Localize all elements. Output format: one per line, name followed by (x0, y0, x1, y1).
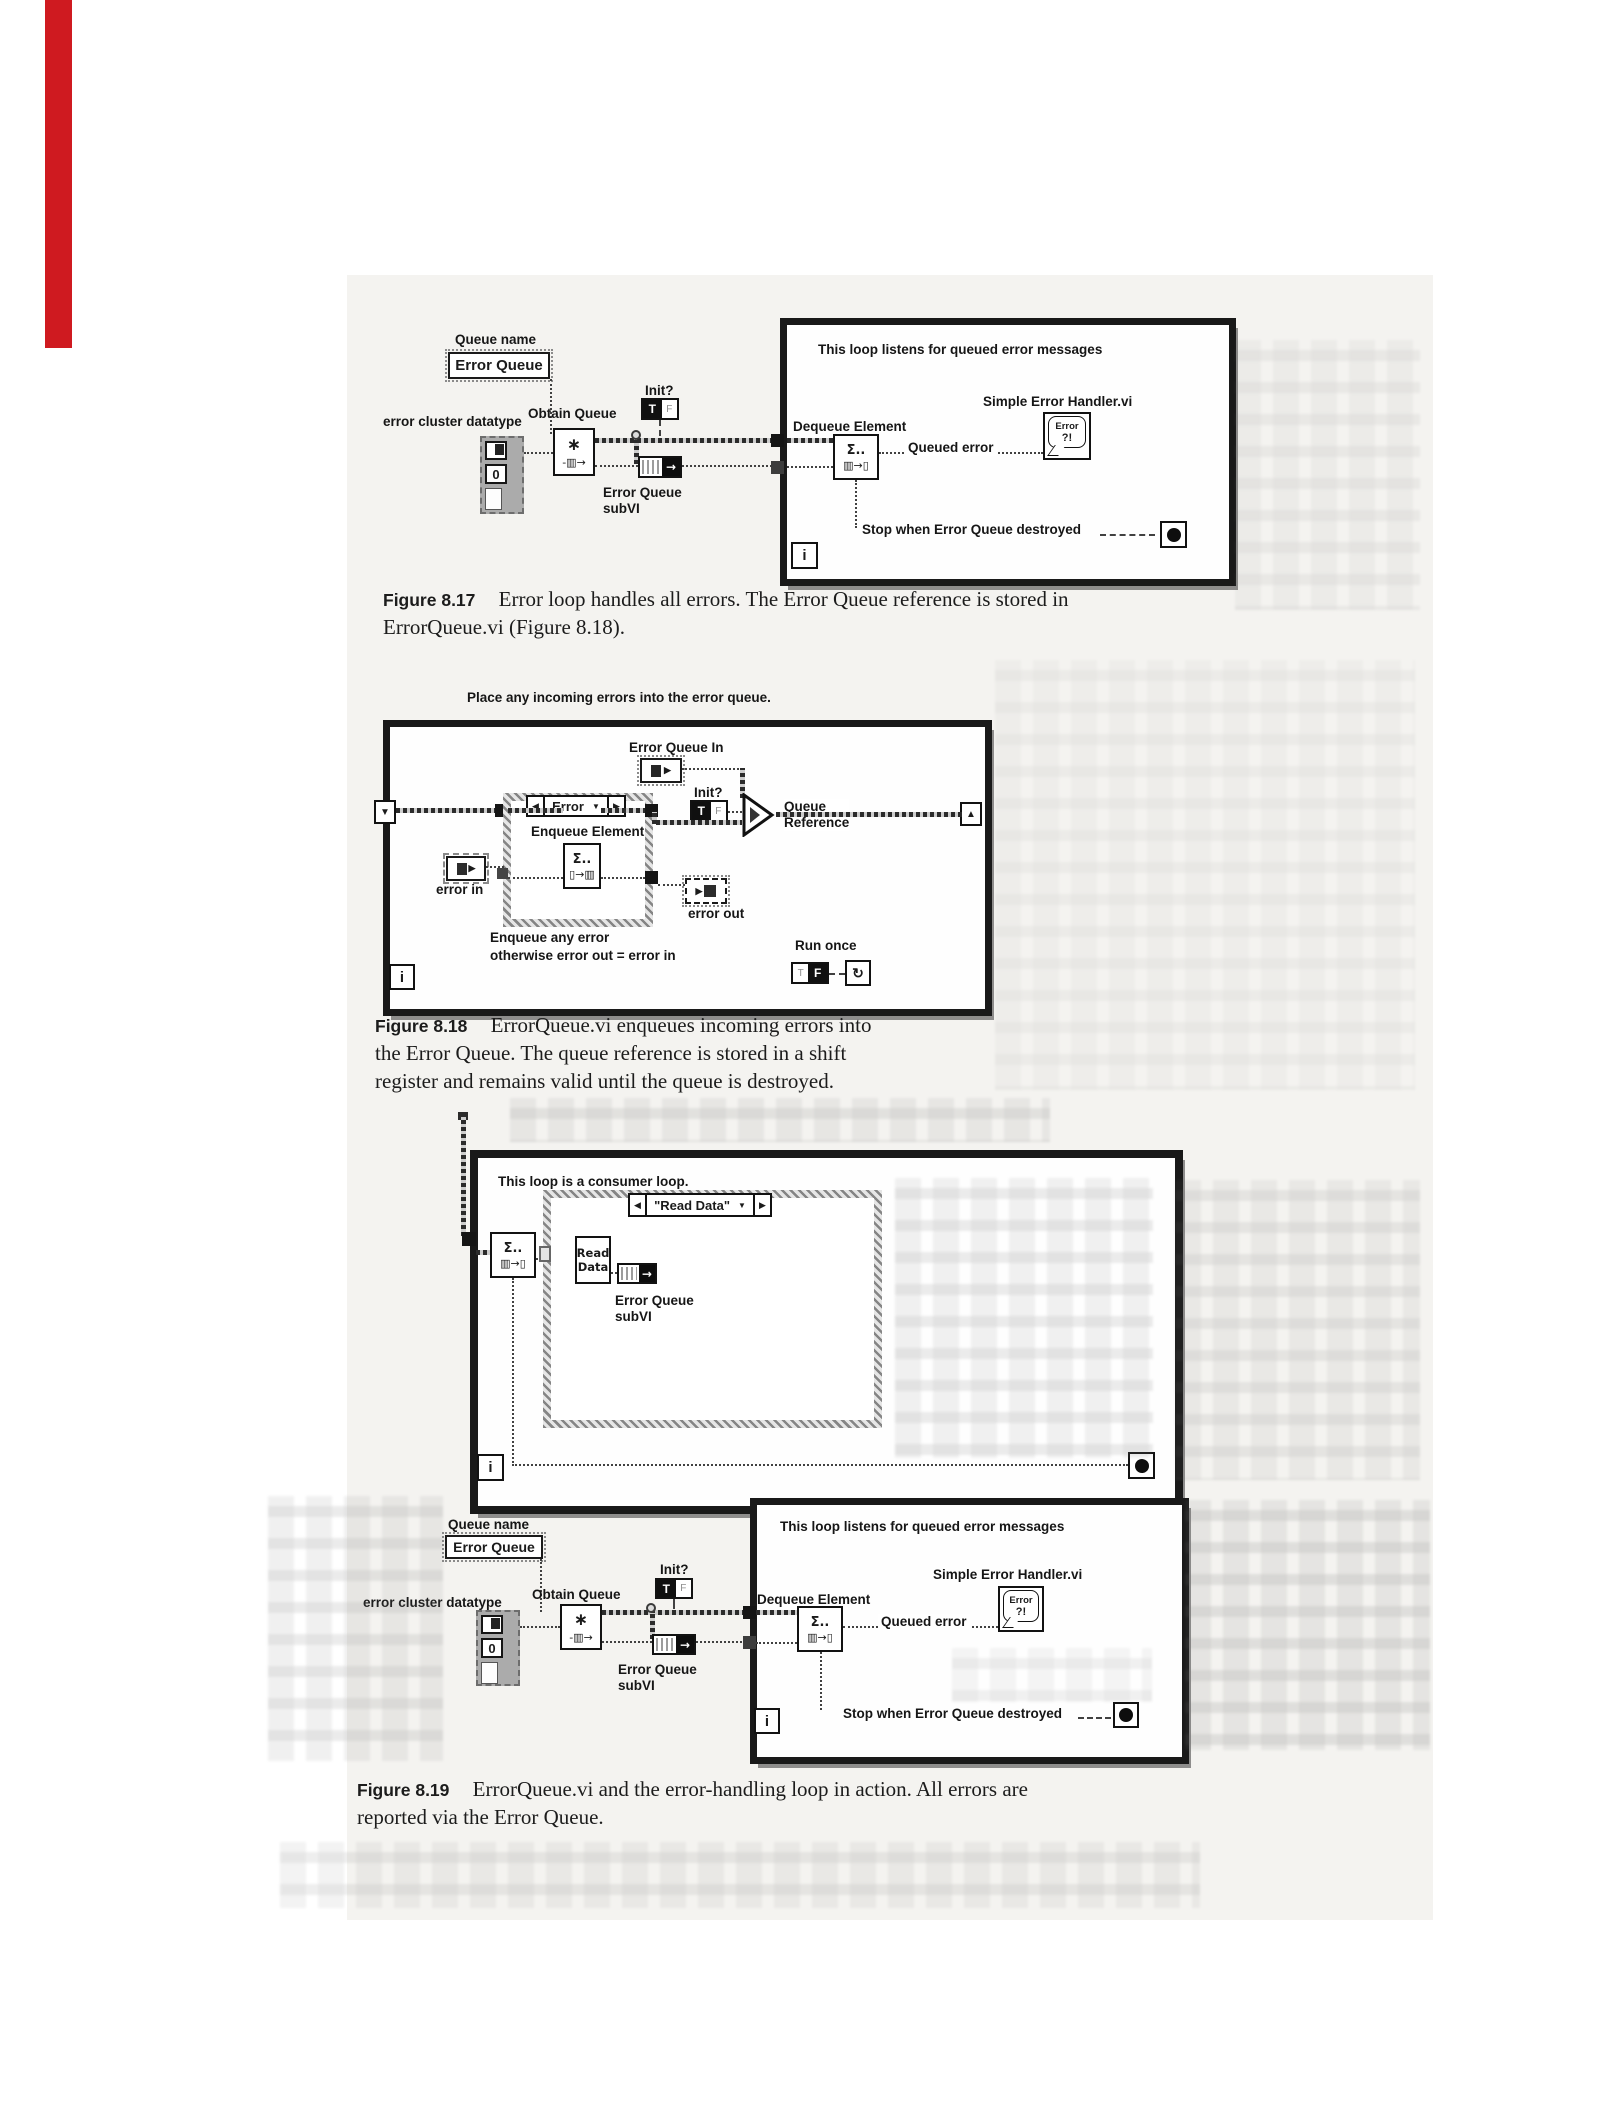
stop-dot-icon (1167, 528, 1181, 542)
stop-terminal (1113, 1702, 1139, 1728)
dropdown-icon: ▼ (738, 1201, 746, 1210)
false-value: F (662, 400, 677, 418)
bleed-through-text (895, 1178, 1153, 1458)
figure-caption: Figure 8.19 ErrorQueue.vi and the error-… (357, 1776, 1028, 1803)
wire (756, 1642, 797, 1644)
cluster-source-field (485, 488, 502, 510)
wire (1100, 534, 1155, 536)
arrow-icon: → (662, 458, 680, 476)
note-line1: Enqueue any error (490, 930, 609, 946)
error-in-control: ▶ (446, 856, 486, 881)
hourglass-icon: Σ.. (573, 852, 592, 867)
bubble-tail (1047, 445, 1066, 456)
select-node (742, 793, 776, 837)
tunnel (743, 1636, 756, 1649)
handler-label: Simple Error Handler.vi (983, 394, 1132, 410)
queue-name-string-control: Error Queue (445, 1535, 543, 1559)
simple-error-handler-icon: Error ?! (1043, 412, 1091, 460)
figure-caption-line2: reported via the Error Queue. (357, 1804, 604, 1831)
note-line2: otherwise error out = error in (490, 948, 676, 964)
iteration-terminal: i (389, 964, 415, 990)
error-out-label: error out (688, 906, 744, 922)
wire (602, 1641, 652, 1643)
enqueue-label: Enqueue Element (531, 824, 644, 840)
queue-name-value: Error Queue (453, 1539, 535, 1555)
error-queue-in-control: ▶ (640, 758, 682, 783)
bleed-through-text (1235, 340, 1420, 610)
dequeue-element-node: Σ.. ▥→▯ (833, 434, 879, 480)
wire (658, 884, 685, 886)
tunnel (743, 1606, 756, 1619)
queue-name-value: Error Queue (455, 357, 543, 374)
case-selector: ◀ "Read Data"▼ ▶ (628, 1193, 772, 1217)
wire (512, 1464, 1128, 1466)
wire (855, 480, 857, 528)
dequeue-element-node: Σ.. ▥→▯ (490, 1232, 536, 1278)
obtain-queue-node: ∗ -▥→ (553, 428, 595, 476)
tunnel (497, 868, 508, 879)
figure-caption-line2: the Error Queue. The queue reference is … (375, 1040, 846, 1067)
subvi-label: Error Queue subVI (615, 1293, 694, 1325)
arrow-icon: ▶ (696, 886, 703, 897)
wire (756, 1610, 797, 1615)
wire (508, 877, 563, 879)
wire (508, 808, 563, 813)
error-out-indicator: ▶ (685, 878, 727, 904)
case-selector: ◀ Error▼ ▶ (526, 795, 626, 817)
shift-register-right: ▲ (960, 802, 982, 826)
cluster-status-icon (485, 441, 507, 460)
queue-pattern-icon (656, 1638, 674, 1651)
init-label: Init? (694, 785, 723, 801)
figure-caption-line3: register and remains valid until the que… (375, 1068, 834, 1095)
arrow-icon: → (676, 1636, 694, 1653)
tunnel (771, 461, 784, 474)
enqueue-icon: ▯→▥ (569, 868, 595, 881)
queue-name-string-control: Error Queue (448, 352, 550, 379)
cluster-source-field (481, 1662, 498, 1684)
init-label: Init? (645, 383, 674, 399)
wire (656, 820, 742, 825)
init-boolean-constant: T F (690, 800, 728, 822)
bleed-through-text (268, 1496, 443, 1761)
speech-bubble-icon: Error ?! (1048, 416, 1086, 448)
error-queue-subvi-node: → (617, 1263, 657, 1284)
wire (787, 438, 833, 443)
handler-label: Simple Error Handler.vi (933, 1567, 1082, 1583)
wire (787, 466, 833, 468)
dequeue-element-node: Σ.. ▥→▯ (797, 1606, 843, 1652)
wire (540, 1559, 542, 1612)
figure-caption: Figure 8.17 Error loop handles all error… (383, 586, 1069, 613)
hourglass-icon: Σ.. (847, 443, 866, 458)
wire (659, 420, 661, 436)
arrow-icon: ▶ (469, 863, 476, 874)
wire (524, 452, 553, 454)
wire (461, 1116, 466, 1236)
loop-condition-terminal: ↻ (845, 960, 871, 986)
wire (673, 1599, 675, 1609)
burst-icon: ∗ (574, 1610, 588, 1630)
case-structure (543, 1190, 882, 1428)
wire (396, 808, 497, 813)
bleed-through-text (995, 660, 1415, 1090)
error-in-label: error in (436, 882, 483, 898)
dequeue-label: Dequeue Element (793, 419, 906, 435)
cluster-glyph (704, 885, 716, 897)
cluster-code-value: 0 (481, 1638, 503, 1658)
error-cluster-label: error cluster datatype (383, 414, 522, 430)
bleed-through-text (952, 1648, 1152, 1702)
wire (602, 1610, 750, 1615)
bleed-through-text (1185, 1500, 1430, 1750)
obtain-queue-node: ∗ -▥→ (560, 1604, 602, 1650)
error-queue-subvi-node: → (638, 456, 682, 478)
burst-icon: ∗ (567, 435, 581, 455)
wire (601, 877, 645, 879)
figure-caption: Figure 8.18 ErrorQueue.vi enqueues incom… (375, 1012, 871, 1039)
cluster-status-icon (481, 1615, 503, 1634)
queue-name-label: Queue name (448, 1517, 529, 1533)
refnum-glyph (651, 765, 661, 777)
subvi-label: Error Queue subVI (618, 1662, 697, 1694)
queue-pattern-icon (642, 460, 660, 474)
tunnel (771, 434, 784, 447)
red-bookmark-strip (45, 0, 72, 348)
init-label: Init? (660, 1562, 689, 1578)
wire (682, 768, 742, 770)
wire (595, 465, 638, 467)
error-cluster-constant: 0 (476, 1610, 520, 1686)
enqueue-element-node: Σ.. ▯→▥ (563, 843, 601, 889)
wire (512, 1278, 514, 1466)
dropdown-icon: ▼ (592, 802, 600, 811)
loop-comment: This loop listens for queued error messa… (780, 1519, 1064, 1535)
iteration-terminal: i (754, 1708, 780, 1734)
bleed-through-text (1175, 1180, 1420, 1480)
wire (520, 1626, 560, 1628)
wire (776, 812, 962, 817)
error-queue-in-label: Error Queue In (629, 740, 724, 756)
wire (728, 811, 742, 813)
true-value: T (643, 400, 662, 418)
queued-error-label: Queued error (878, 1614, 970, 1630)
wire-junction (631, 430, 641, 440)
loop-comment: This loop is a consumer loop. (498, 1174, 689, 1190)
wire (595, 438, 780, 443)
dequeue-icon: ▥→▯ (843, 459, 869, 472)
shift-register-left: ▼ (374, 800, 396, 824)
diagram-comment: Place any incoming errors into the error… (467, 690, 771, 706)
scanned-book-page: Queue name Error Queue error cluster dat… (0, 0, 1600, 2128)
wire (696, 1641, 750, 1643)
iteration-terminal: i (477, 1454, 504, 1481)
init-boolean-constant: T F (641, 398, 679, 420)
case-selector-value: "Read Data" (654, 1198, 730, 1213)
queue-name-label: Queue name (455, 332, 536, 348)
wire (1078, 1717, 1111, 1719)
figure-caption-line2: ErrorQueue.vi (Figure 8.18). (383, 614, 625, 641)
simple-error-handler-icon: Error ?! (998, 1586, 1044, 1632)
error-queue-subvi-node: → (652, 1634, 696, 1655)
dequeue-icon: ▥→▯ (500, 1257, 526, 1270)
error-cluster-constant: 0 (480, 436, 524, 514)
cluster-code-value: 0 (485, 464, 507, 484)
hourglass-icon: Σ.. (504, 1241, 523, 1256)
wire (601, 808, 645, 813)
obtain-queue-label: Obtain Queue (532, 1587, 621, 1603)
case-prev-icon: ◀ (630, 1195, 647, 1215)
iteration-terminal: i (791, 542, 818, 569)
stop-label: Stop when Error Queue destroyed (843, 1706, 1062, 1722)
tunnel (539, 1246, 551, 1262)
obtain-queue-label: Obtain Queue (528, 406, 617, 422)
queued-error-label: Queued error (905, 440, 997, 456)
case-next-icon: ▶ (753, 1195, 770, 1215)
stop-label: Stop when Error Queue destroyed (862, 522, 1081, 538)
wire (476, 1250, 490, 1255)
wire (829, 973, 845, 975)
tunnel (462, 1232, 476, 1246)
arrow-icon: ▶ (664, 765, 671, 776)
wire (682, 465, 780, 467)
cluster-glyph (457, 863, 467, 875)
run-once-boolean-constant: F T (791, 962, 829, 984)
wire (820, 1652, 822, 1710)
bleed-through-text (280, 1842, 1200, 1908)
stop-dot-icon (1135, 1459, 1149, 1473)
tunnel (645, 871, 658, 884)
run-once-label: Run once (795, 938, 857, 954)
init-boolean-constant: T F (655, 1578, 693, 1599)
stop-terminal (1160, 521, 1187, 548)
subvi-label: Error Queue subVI (603, 485, 682, 517)
queue-icon: -▥→ (562, 456, 586, 469)
dequeue-icon: ▥→▯ (807, 1631, 833, 1644)
queue-icon: -▥→ (569, 1631, 593, 1644)
read-data-subvi-node: Read Data (575, 1236, 611, 1284)
hourglass-icon: Σ.. (811, 1615, 830, 1630)
arrow-icon: → (639, 1265, 655, 1282)
wire-junction (646, 1603, 656, 1613)
loop-comment: This loop listens for queued error messa… (818, 342, 1102, 358)
queue-pattern-icon (621, 1267, 637, 1280)
bleed-through-text (510, 1098, 1050, 1142)
stop-dot-icon (1119, 1708, 1133, 1722)
